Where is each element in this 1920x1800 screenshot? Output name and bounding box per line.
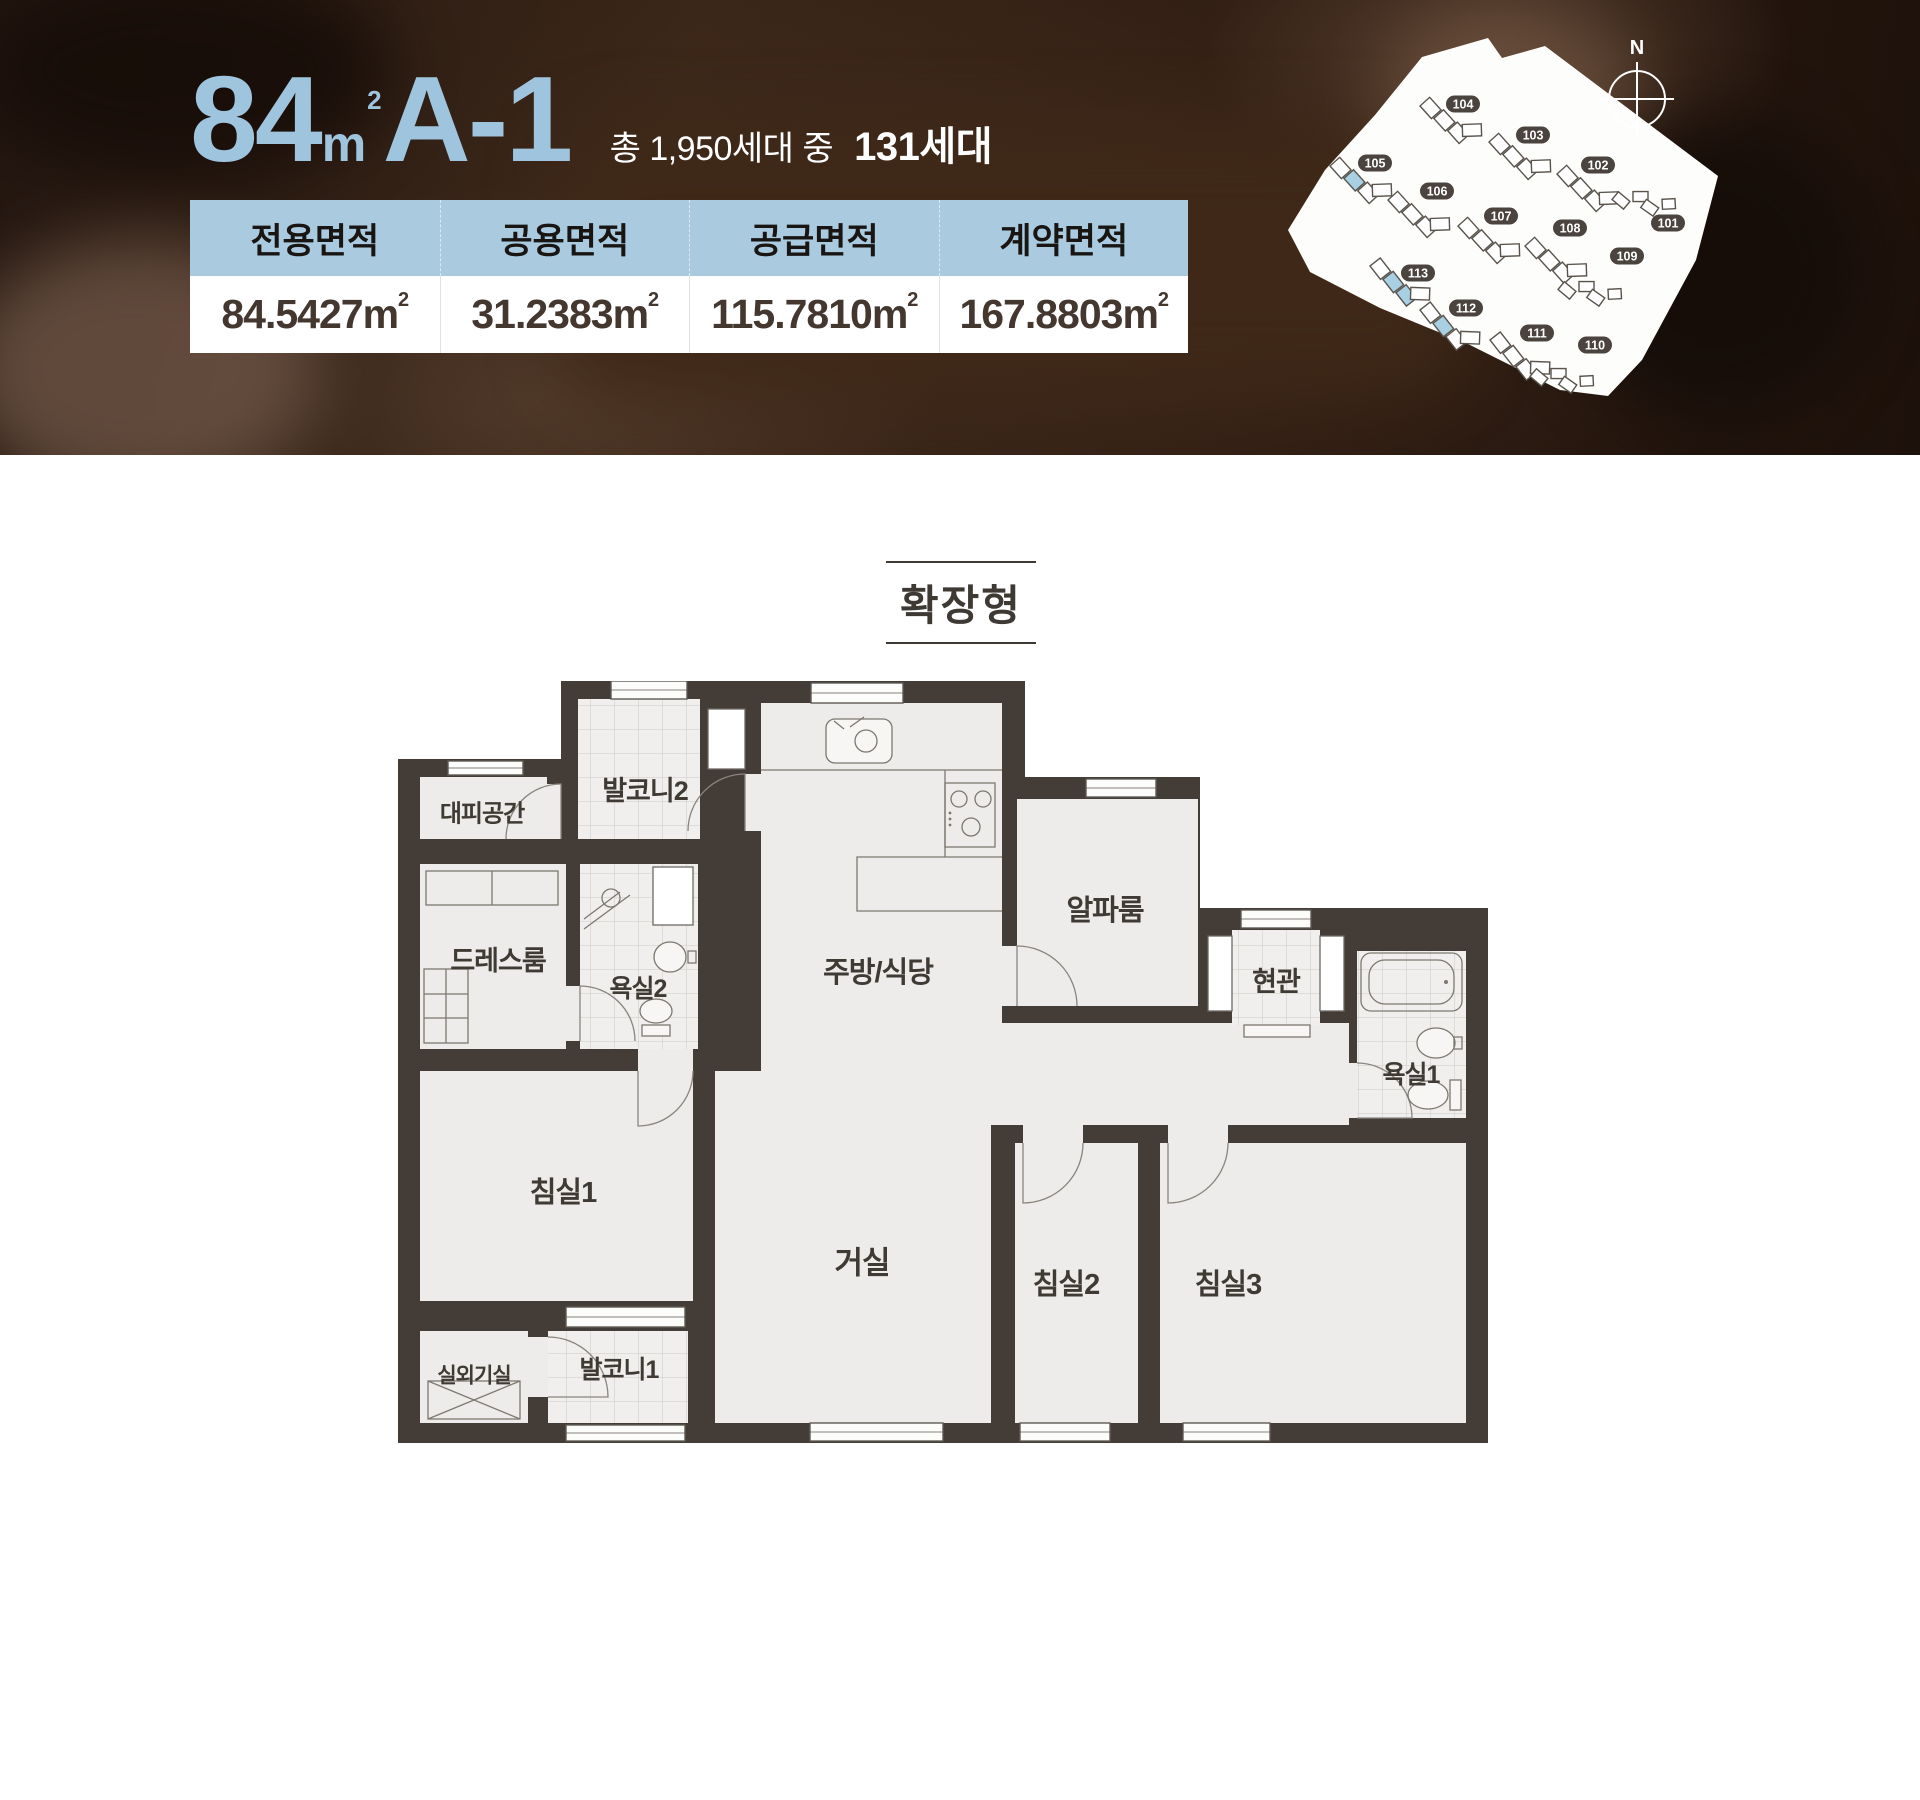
area-table-value: 84.5427m2 [190, 276, 440, 353]
area-table-header: 공용면적 [440, 200, 690, 276]
shaft-box [653, 867, 693, 925]
unit-area-number: 84 [190, 58, 320, 180]
building-badge-103: 103 [1516, 127, 1550, 144]
area-table-header-row: 전용면적 공용면적 공급면적 계약면적 [190, 200, 1188, 276]
room-label-kitchen-dining: 주방/식당 [823, 956, 934, 989]
household-total: 총 1,950세대 중 [610, 130, 834, 168]
building-badge-107: 107 [1484, 208, 1518, 225]
washbasin-icon [1417, 1028, 1455, 1058]
building-badge-112: 112 [1449, 300, 1483, 317]
area-table-header: 계약면적 [939, 200, 1189, 276]
room-label-bedroom3: 침실3 [1195, 1268, 1262, 1301]
kitchen-sink-icon [826, 719, 892, 763]
svg-text:108: 108 [1560, 222, 1581, 236]
svg-text:106: 106 [1427, 185, 1448, 199]
household-highlight: 131세대 [854, 125, 992, 169]
room-label-bath1: 욕실1 [1383, 1061, 1441, 1089]
room-balcony2 [578, 699, 700, 839]
building-badge-109: 109 [1610, 248, 1644, 265]
room-label-bath2: 욕실2 [610, 975, 667, 1003]
room-label-living: 거실 [834, 1246, 889, 1281]
building-badge-108: 108 [1553, 220, 1587, 237]
svg-text:109: 109 [1617, 250, 1638, 264]
area-table-header: 전용면적 [190, 200, 440, 276]
washbasin-icon [654, 942, 686, 972]
room-label-outdoor-unit: 실외기실 [437, 1365, 510, 1388]
household-count-line: 총 1,950세대 중 131세대 [530, 114, 992, 172]
room-label-bedroom2: 침실2 [1033, 1268, 1100, 1301]
hero-photo-banner: 84 m2 A-1 총 1,950세대 중 131세대 전용면적 공용면적 공급… [0, 0, 1920, 455]
svg-text:113: 113 [1408, 267, 1428, 281]
building-badge-113: 113 [1401, 265, 1435, 282]
room-label-alpha: 알파룸 [1066, 894, 1143, 927]
plan-variant-tag: 확장형 [886, 561, 1036, 644]
svg-text:111: 111 [1527, 327, 1547, 341]
building-badge-101: 101 [1651, 215, 1685, 232]
building-badge-102: 102 [1581, 157, 1615, 174]
svg-text:110: 110 [1585, 339, 1605, 353]
room-label-balcony1: 발코니1 [580, 1356, 660, 1384]
closet-box [708, 709, 745, 769]
svg-text:107: 107 [1491, 210, 1512, 224]
building-badge-104: 104 [1446, 96, 1480, 113]
svg-text:101: 101 [1658, 217, 1679, 231]
svg-text:104: 104 [1453, 98, 1474, 112]
svg-text:102: 102 [1588, 159, 1609, 173]
room-label-dressroom: 드레스룸 [450, 946, 546, 976]
room-label-entry: 현관 [1252, 967, 1301, 997]
floor-plan: 대피공간 발코니2 드레스룸 욕실2 주방/식당 알파룸 현관 욕실1 침실1 … [398, 681, 1488, 1446]
shoe-cabinet [1320, 936, 1344, 1011]
shoe-cabinet [1208, 936, 1232, 1011]
room-label-balcony2: 발코니2 [602, 776, 688, 806]
area-table-value: 31.2383m2 [440, 276, 690, 353]
svg-text:105: 105 [1365, 157, 1386, 171]
unit-type-title: 84 m2 A-1 [190, 58, 570, 180]
svg-text:103: 103 [1523, 129, 1544, 143]
building-badge-111: 111 [1520, 325, 1554, 342]
room-label-bedroom1: 침실1 [530, 1176, 597, 1209]
area-table-header: 공급면적 [689, 200, 939, 276]
brochure-page: 84 m2 A-1 총 1,950세대 중 131세대 전용면적 공용면적 공급… [0, 0, 1920, 1800]
entry-step [1244, 1025, 1310, 1037]
site-map: 101 102 103 104 105 106 107 108 109 110 … [1270, 18, 1740, 418]
room-label-escape-space: 대피공간 [440, 801, 525, 828]
area-table-value: 115.7810m2 [689, 276, 939, 353]
svg-text:112: 112 [1456, 302, 1476, 316]
svg-text:N: N [1630, 37, 1644, 59]
unit-area-sqm: m2 [322, 115, 381, 173]
building-badge-106: 106 [1420, 183, 1454, 200]
building-badge-110: 110 [1578, 337, 1612, 354]
area-table-value-row: 84.5427m2 31.2383m2 115.7810m2 167.8803m… [190, 276, 1188, 353]
building-badge-105: 105 [1358, 155, 1392, 172]
area-table: 전용면적 공용면적 공급면적 계약면적 84.5427m2 31.2383m2 … [190, 200, 1188, 353]
area-table-value: 167.8803m2 [939, 276, 1189, 353]
